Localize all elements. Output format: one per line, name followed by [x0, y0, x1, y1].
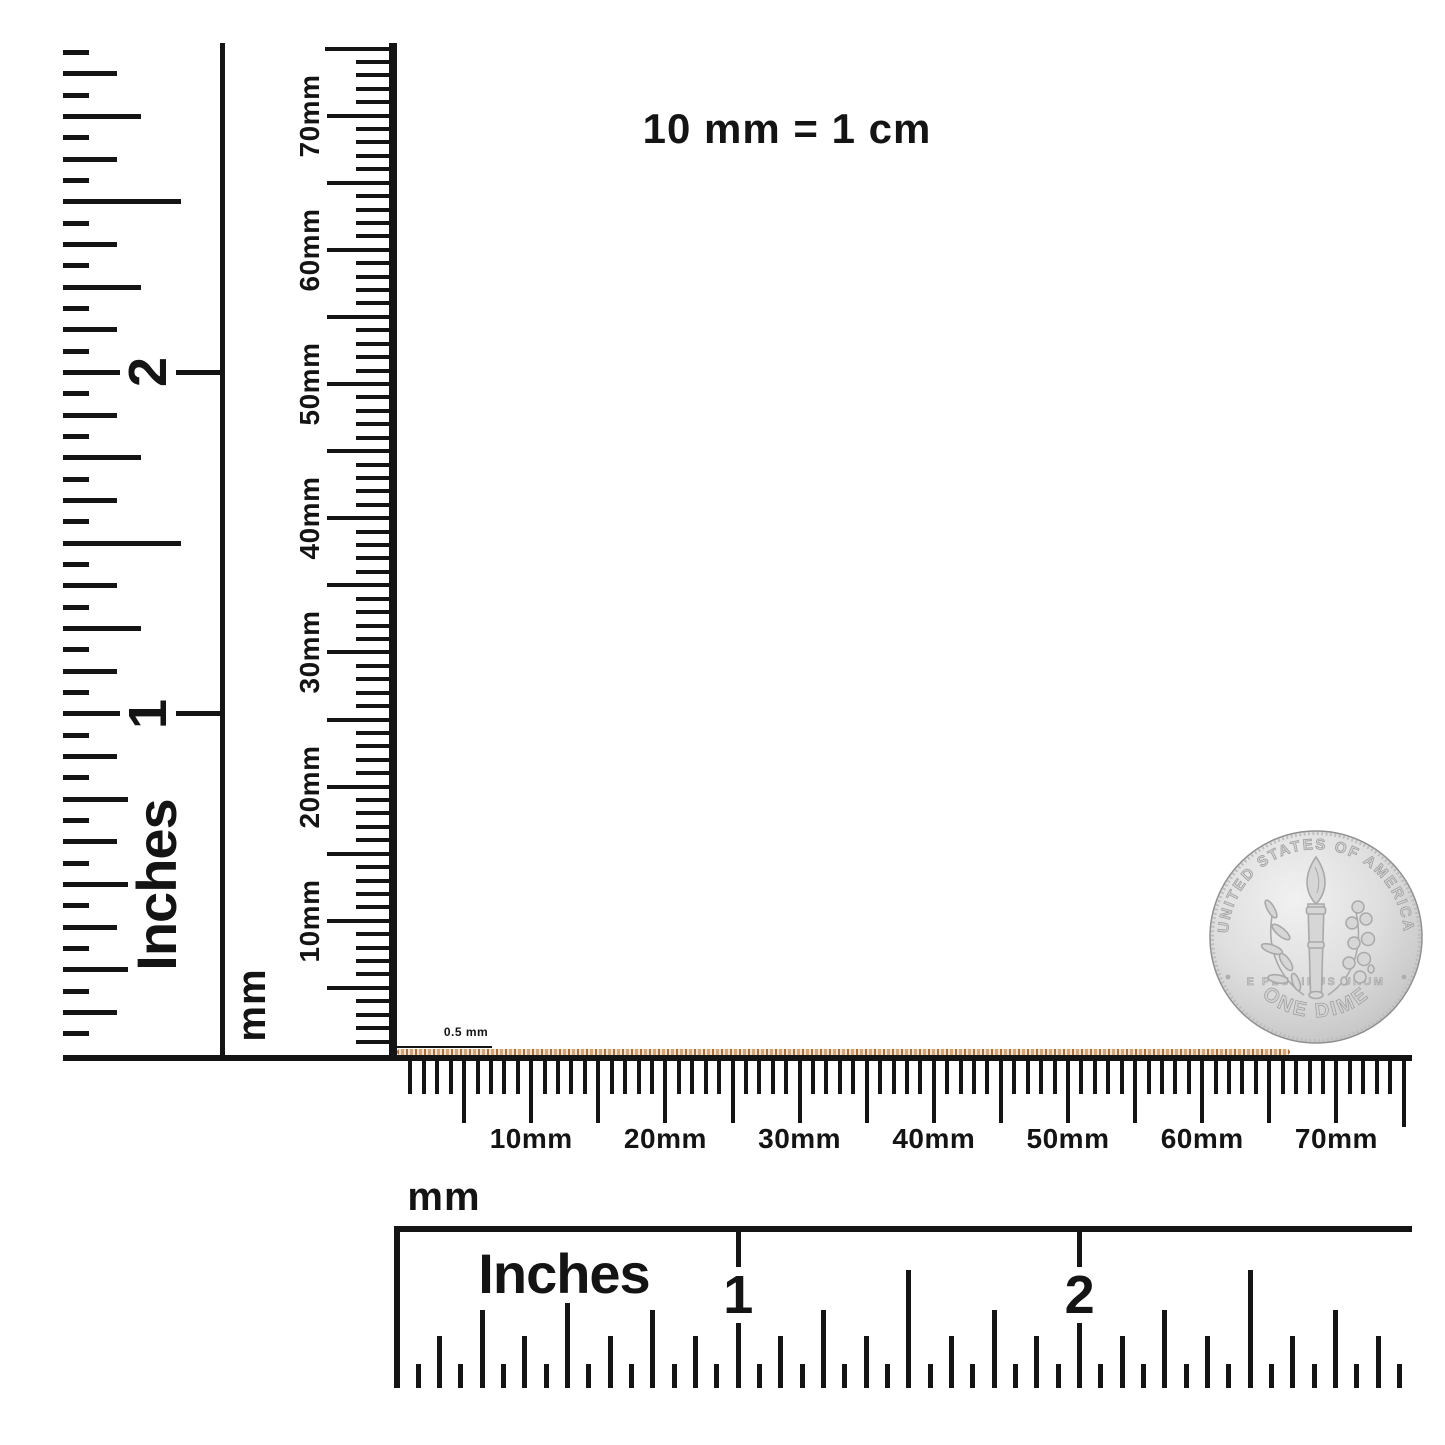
inch-tick	[1226, 1364, 1231, 1388]
inch-tick	[63, 327, 117, 332]
inch-tick	[672, 1364, 677, 1388]
mm-tick	[356, 570, 389, 574]
inch-tick	[63, 839, 117, 844]
inch-tick	[63, 562, 89, 567]
inch-tick	[1333, 1310, 1338, 1388]
inch-tick	[63, 989, 89, 994]
mm-tick	[1214, 1061, 1218, 1094]
mm-tick	[1187, 1061, 1191, 1094]
mm-tick	[851, 1061, 855, 1094]
mm-tick	[771, 1061, 775, 1094]
mm-tick	[610, 1061, 614, 1094]
mm-tick	[356, 959, 389, 963]
mm-tick	[356, 664, 389, 668]
inch-tick	[63, 861, 89, 866]
mm-tick	[356, 905, 389, 909]
inch-tick	[437, 1336, 442, 1388]
inch-tick	[63, 946, 89, 951]
mm-tick	[327, 919, 389, 923]
mm-tick	[356, 556, 389, 560]
mm-tick	[623, 1061, 627, 1094]
inch-tick	[63, 413, 117, 418]
vertical-mm-tick-label: 30mm	[296, 611, 324, 694]
mm-tick	[435, 1061, 439, 1094]
mm-tick	[1348, 1061, 1352, 1094]
mm-tick	[356, 543, 389, 547]
mm-tick	[327, 583, 389, 587]
inch-tick	[63, 626, 141, 631]
mm-tick	[543, 1061, 547, 1094]
inch-tick	[63, 114, 141, 119]
inch-tick	[1354, 1364, 1359, 1388]
inch-tick	[63, 391, 89, 396]
mm-tick	[356, 208, 389, 212]
mm-tick	[356, 691, 389, 695]
mm-tick	[356, 342, 389, 346]
inch-tick	[63, 434, 89, 439]
inch-tick	[1098, 1364, 1103, 1388]
bottom-inches-ruler-top-line	[394, 1226, 1412, 1232]
mm-tick	[663, 1061, 667, 1123]
mm-tick	[717, 1061, 721, 1094]
inch-tick	[629, 1364, 634, 1388]
inch-tick	[992, 1310, 997, 1388]
inch-tick	[63, 221, 89, 226]
mm-tick	[1227, 1061, 1231, 1094]
mm-tick	[356, 530, 389, 534]
left-inches-ruler-edge-line	[220, 43, 225, 1058]
inch-tick	[63, 690, 89, 695]
inch-tick	[416, 1364, 421, 1388]
mm-tick	[356, 825, 389, 829]
inch-tick	[63, 647, 89, 652]
bottom-inches-ruler-title: Inches	[473, 1245, 654, 1303]
mm-tick	[1120, 1061, 1124, 1094]
horizontal-mm-tick-label: 40mm	[892, 1125, 975, 1153]
mm-tick	[489, 1061, 493, 1094]
mm-tick	[462, 1061, 466, 1123]
inch-tick	[1248, 1270, 1253, 1388]
mm-tick	[327, 114, 389, 118]
inch-tick	[63, 71, 117, 76]
vertical-mm-ruler-unit-label: mm	[232, 968, 272, 1041]
mm-tick	[1200, 1061, 1204, 1123]
mm-tick	[356, 140, 389, 144]
inch-tick	[63, 199, 181, 204]
inch-tick	[63, 733, 89, 738]
inch-tick	[63, 349, 89, 354]
inch-tick	[778, 1336, 783, 1388]
mm-tick	[1254, 1061, 1258, 1094]
inch-tick	[63, 1010, 117, 1015]
inch-tick	[906, 1270, 911, 1388]
mm-tick	[1093, 1061, 1097, 1094]
mm-tick	[356, 194, 389, 198]
mm-tick	[327, 516, 389, 520]
inch-tick	[63, 157, 117, 162]
mm-tick	[1361, 1061, 1365, 1094]
mm-tick	[356, 771, 389, 775]
mm-tick	[918, 1061, 922, 1094]
inch-tick	[1376, 1336, 1381, 1388]
gold-chain	[397, 1049, 1290, 1055]
mm-tick	[356, 865, 389, 869]
inch-tick	[63, 242, 117, 247]
mm-tick	[327, 852, 389, 856]
inch-tick	[63, 583, 117, 588]
mm-tick	[637, 1061, 641, 1094]
inch-tick	[842, 1364, 847, 1388]
mm-tick	[356, 234, 389, 238]
mm-tick	[356, 838, 389, 842]
mm-tick	[356, 610, 389, 614]
coin-right-dot	[1402, 975, 1407, 980]
mm-tick	[356, 999, 389, 1003]
mm-tick	[422, 1061, 426, 1094]
mm-tick	[356, 476, 389, 480]
mm-tick	[356, 972, 389, 976]
mm-tick	[650, 1061, 654, 1094]
mm-tick	[1106, 1061, 1110, 1094]
mm-tick	[356, 127, 389, 131]
inch-tick	[1141, 1364, 1146, 1388]
mm-tick	[1308, 1061, 1312, 1094]
mm-tick	[327, 248, 389, 252]
inch-tick	[1269, 1364, 1274, 1388]
inch-tick	[63, 541, 181, 546]
horizontal-mm-tick-label: 20mm	[624, 1125, 707, 1153]
mm-tick	[757, 1061, 761, 1094]
mm-tick	[865, 1061, 869, 1123]
mm-tick	[1053, 1061, 1057, 1094]
inch-tick	[1205, 1336, 1210, 1388]
mm-tick	[690, 1061, 694, 1094]
horizontal-mm-tick-label: 60mm	[1161, 1125, 1244, 1153]
mm-tick	[1026, 1061, 1030, 1094]
mm-tick	[502, 1061, 506, 1094]
mm-tick	[327, 382, 389, 386]
inch-tick	[586, 1364, 591, 1388]
mm-tick	[1039, 1061, 1043, 1094]
mm-tick	[476, 1061, 480, 1094]
mm-tick	[784, 1061, 788, 1094]
mm-tick	[356, 677, 389, 681]
mm-tick	[356, 73, 389, 77]
mm-tick	[596, 1061, 600, 1123]
mm-tick	[356, 744, 389, 748]
mm-tick	[1388, 1061, 1392, 1094]
inch-tick	[885, 1364, 890, 1388]
inch-tick	[63, 93, 89, 98]
mm-tick	[356, 637, 389, 641]
chain-size-underline	[397, 1046, 492, 1048]
mm-tick	[1160, 1061, 1164, 1094]
mm-tick	[356, 422, 389, 426]
mm-tick	[959, 1061, 963, 1094]
mm-tick	[356, 221, 389, 225]
left-inch-number-label: 1	[120, 694, 176, 734]
inch-tick	[608, 1336, 613, 1388]
mm-tick	[811, 1061, 815, 1094]
mm-tick	[798, 1061, 802, 1123]
mm-tick	[731, 1061, 735, 1123]
mm-tick	[516, 1061, 520, 1094]
mm-tick	[356, 503, 389, 507]
mm-tick	[356, 758, 389, 762]
vertical-mm-tick-label: 70mm	[296, 74, 324, 157]
mm-tick	[356, 369, 389, 373]
inch-tick	[63, 263, 89, 268]
mm-tick	[1321, 1061, 1325, 1094]
inch-tick	[1120, 1336, 1125, 1388]
inch-tick	[63, 455, 141, 460]
inch-tick	[501, 1364, 506, 1388]
mm-tick	[327, 449, 389, 453]
mm-tick	[556, 1061, 560, 1094]
inch-tick	[864, 1336, 869, 1388]
inch-tick	[63, 477, 89, 482]
mm-tick	[327, 315, 389, 319]
inch-tick	[63, 818, 89, 823]
inch-tick	[1013, 1364, 1018, 1388]
horizontal-mm-tick-label: 10mm	[490, 1125, 573, 1153]
mm-tick	[1012, 1061, 1016, 1094]
inch-tick	[63, 519, 89, 524]
inch-tick	[63, 1031, 89, 1036]
mm-tick	[327, 181, 389, 185]
chain-size-label: 0.5 mm	[444, 1025, 488, 1039]
inch-tick	[650, 1310, 655, 1388]
vertical-mm-tick-label: 50mm	[296, 343, 324, 426]
mm-tick	[677, 1061, 681, 1094]
bottom-inches-ruler-left-edge	[394, 1226, 400, 1388]
mm-tick	[356, 409, 389, 413]
vertical-mm-tick-label: 10mm	[296, 879, 324, 962]
vertical-mm-tick-label: 40mm	[296, 477, 324, 560]
bottom-inch-number-label: 2	[1060, 1267, 1100, 1323]
mm-tick	[744, 1061, 748, 1094]
mm-tick	[356, 1026, 389, 1030]
mm-tick	[356, 798, 389, 802]
inch-tick	[63, 306, 89, 311]
mm-tick	[356, 275, 389, 279]
inch-tick	[949, 1336, 954, 1388]
dime-coin: UNITED STATES OF AMERICA ONE DIME E PLUR…	[1209, 830, 1423, 1044]
inch-tick	[1162, 1310, 1167, 1388]
inch-tick	[1056, 1364, 1061, 1388]
inch-tick	[1397, 1364, 1402, 1388]
mm-tick	[356, 395, 389, 399]
inch-tick	[1184, 1364, 1189, 1388]
mm-tick	[1079, 1061, 1083, 1094]
mm-tick	[356, 932, 389, 936]
horizontal-mm-tick-label: 50mm	[1027, 1125, 1110, 1153]
mm-tick	[1240, 1061, 1244, 1094]
mm-tick	[356, 704, 389, 708]
horizontal-mm-tick-label: 30mm	[758, 1125, 841, 1153]
inch-tick	[63, 50, 89, 55]
mm-tick	[945, 1061, 949, 1094]
mm-tick	[356, 489, 389, 493]
mm-tick	[356, 261, 389, 265]
mm-tick	[356, 288, 389, 292]
mm-tick	[356, 328, 389, 332]
mm-tick	[356, 100, 389, 104]
measurement-scale-image: 10 mm = 1 cm Inches 12 mm 10mm20mm30mm40…	[0, 0, 1445, 1445]
mm-tick	[356, 1013, 389, 1017]
mm-tick	[356, 624, 389, 628]
mm-tick	[1375, 1061, 1379, 1094]
inch-tick	[63, 605, 89, 610]
mm-tick	[905, 1061, 909, 1094]
horizontal-baseline	[63, 1055, 1412, 1061]
mm-tick	[999, 1061, 1003, 1123]
mm-tick	[1133, 1061, 1137, 1123]
inch-tick	[1312, 1364, 1317, 1388]
mm-tick	[356, 946, 389, 950]
mm-tick	[356, 167, 389, 171]
inch-tick	[1034, 1336, 1039, 1388]
inch-tick	[757, 1364, 762, 1388]
inch-tick	[693, 1336, 698, 1388]
mm-tick	[878, 1061, 882, 1094]
mm-tick	[356, 879, 389, 883]
mm-tick	[932, 1061, 936, 1123]
inch-tick	[63, 754, 117, 759]
mm-tick	[356, 597, 389, 601]
inch-tick	[63, 669, 117, 674]
mm-tick	[327, 718, 389, 722]
left-inch-number-label: 2	[120, 352, 176, 392]
inch-tick	[63, 775, 89, 780]
inch-tick	[800, 1364, 805, 1388]
mm-tick	[356, 60, 389, 64]
inch-tick	[522, 1336, 527, 1388]
mm-tick	[892, 1061, 896, 1094]
mm-tick	[449, 1061, 453, 1094]
inch-tick	[544, 1364, 549, 1388]
mm-tick	[1281, 1061, 1285, 1094]
mm-tick	[327, 785, 389, 789]
mm-tick	[1267, 1061, 1271, 1123]
mm-tick	[356, 463, 389, 467]
torch-icon	[1307, 857, 1326, 999]
mm-tick	[1147, 1061, 1151, 1094]
vertical-mm-ruler-edge-line	[389, 43, 397, 1058]
horizontal-mm-ruler-unit-label: mm	[407, 1177, 480, 1217]
inch-tick	[1290, 1336, 1295, 1388]
mm-tick	[583, 1061, 587, 1094]
mm-tick	[1173, 1061, 1177, 1094]
mm-tick	[356, 731, 389, 735]
mm-tick	[1294, 1061, 1298, 1094]
mm-cm-note: 10 mm = 1 cm	[643, 105, 932, 153]
mm-tick	[972, 1061, 976, 1094]
mm-tick	[529, 1061, 533, 1123]
bottom-inch-number-label: 1	[718, 1267, 758, 1323]
horizontal-mm-tick-label: 70mm	[1295, 1125, 1378, 1153]
mm-tick	[985, 1061, 989, 1094]
inch-tick	[458, 1364, 463, 1388]
mm-tick	[1402, 1061, 1406, 1127]
mm-tick	[569, 1061, 573, 1094]
inch-tick	[63, 135, 89, 140]
inch-tick	[63, 498, 117, 503]
mm-tick	[356, 1040, 389, 1044]
mm-tick	[356, 811, 389, 815]
vertical-mm-tick-label: 60mm	[296, 208, 324, 291]
inch-tick	[821, 1310, 826, 1388]
mm-tick	[356, 436, 389, 440]
inch-tick	[63, 178, 89, 183]
mm-tick	[824, 1061, 828, 1094]
mm-tick	[327, 986, 389, 990]
inch-tick	[480, 1310, 485, 1388]
mm-tick	[704, 1061, 708, 1094]
mm-tick	[408, 1061, 412, 1094]
vertical-mm-tick-label: 20mm	[296, 745, 324, 828]
mm-tick	[1066, 1061, 1070, 1123]
inch-tick	[714, 1364, 719, 1388]
mm-tick	[838, 1061, 842, 1094]
inch-tick	[63, 925, 117, 930]
mm-tick	[356, 87, 389, 91]
inch-tick	[928, 1364, 933, 1388]
inch-tick	[63, 903, 89, 908]
mm-tick	[325, 47, 389, 51]
mm-tick	[356, 301, 389, 305]
mm-tick	[327, 650, 389, 654]
left-inches-ruler-title: Inches	[128, 794, 186, 975]
inch-tick	[63, 285, 141, 290]
mm-tick	[356, 355, 389, 359]
mm-tick	[356, 154, 389, 158]
mm-tick	[1334, 1061, 1338, 1123]
inch-tick	[970, 1364, 975, 1388]
coin-left-dot	[1226, 975, 1231, 980]
mm-tick	[356, 892, 389, 896]
